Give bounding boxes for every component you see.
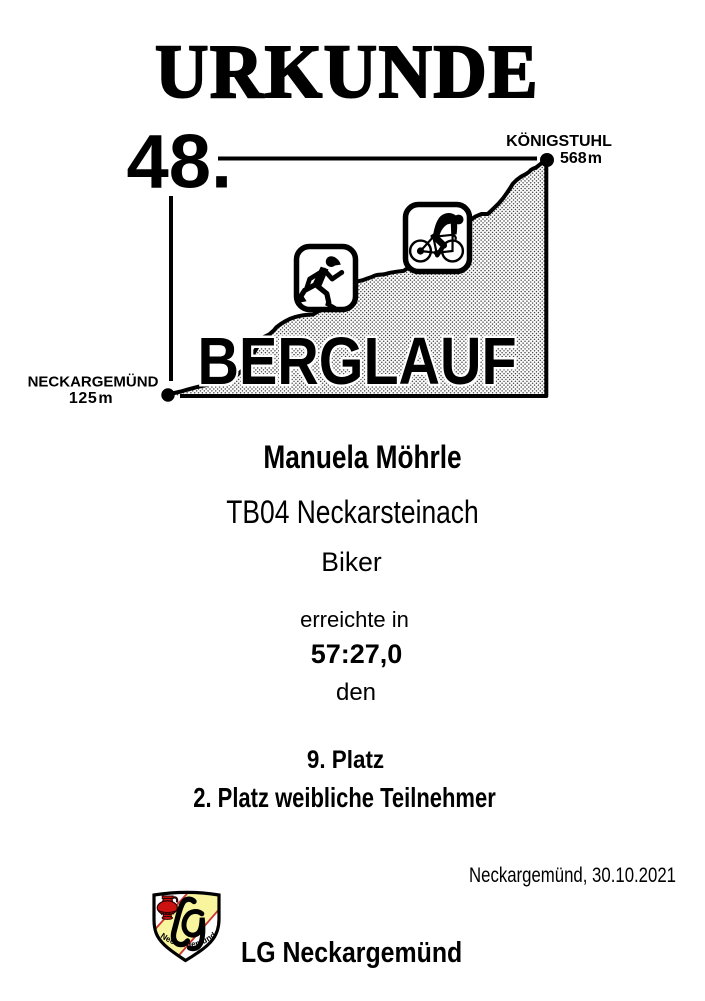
- svg-text:BERGLAUF: BERGLAUF: [198, 325, 517, 399]
- svg-text:125m: 125m: [69, 390, 113, 407]
- svg-text:NECKARGEMÜND: NECKARGEMÜND: [28, 374, 159, 391]
- svg-text:KÖNIGSTUHL: KÖNIGSTUHL: [506, 131, 612, 150]
- svg-text:568m: 568m: [560, 150, 602, 167]
- svg-text:48.: 48.: [127, 120, 233, 205]
